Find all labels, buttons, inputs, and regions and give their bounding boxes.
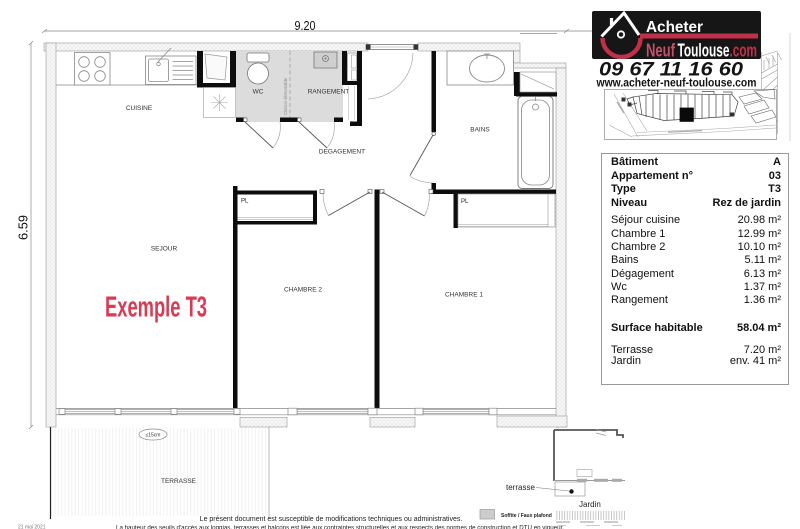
svg-text:Soffite / Faux plafond: Soffite / Faux plafond bbox=[501, 513, 552, 519]
svg-text:Le présent document est suscep: Le présent document est susceptible de m… bbox=[200, 516, 463, 523]
svg-text:CHAMBRE 2: CHAMBRE 2 bbox=[284, 287, 322, 294]
svg-text:RANGEMENT: RANGEMENT bbox=[308, 89, 350, 96]
svg-text:terrasse: terrasse bbox=[506, 483, 535, 492]
svg-text:6.59: 6.59 bbox=[17, 215, 31, 240]
svg-text:SEJOUR: SEJOUR bbox=[151, 246, 178, 253]
svg-text:CHAMBRE 1: CHAMBRE 1 bbox=[445, 292, 483, 299]
svg-text:21 mai 2021: 21 mai 2021 bbox=[18, 525, 46, 529]
svg-text:www.acheter-neuf-toulouse.com: www.acheter-neuf-toulouse.com bbox=[596, 76, 757, 90]
svg-text:PL: PL bbox=[461, 199, 469, 205]
svg-text:La hauteur des seuils d'accès: La hauteur des seuils d'accès aux loggia… bbox=[116, 525, 564, 529]
svg-text:BAINS: BAINS bbox=[470, 127, 490, 134]
svg-text:≤15cm: ≤15cm bbox=[146, 433, 161, 439]
svg-text:Exemple T3: Exemple T3 bbox=[105, 292, 207, 324]
svg-text:Acheter: Acheter bbox=[646, 19, 703, 36]
svg-text:9.20: 9.20 bbox=[295, 18, 316, 33]
svg-text:WC: WC bbox=[253, 89, 264, 96]
svg-text:CUISINE: CUISINE bbox=[126, 105, 153, 112]
svg-text:PL: PL bbox=[241, 199, 249, 205]
svg-text:DEGAGEMENT: DEGAGEMENT bbox=[319, 149, 365, 156]
svg-text:Jardin: Jardin bbox=[579, 500, 601, 509]
svg-text:TERRASSE: TERRASSE bbox=[161, 478, 197, 485]
svg-text:Cloison démontable: Cloison démontable bbox=[283, 77, 288, 115]
